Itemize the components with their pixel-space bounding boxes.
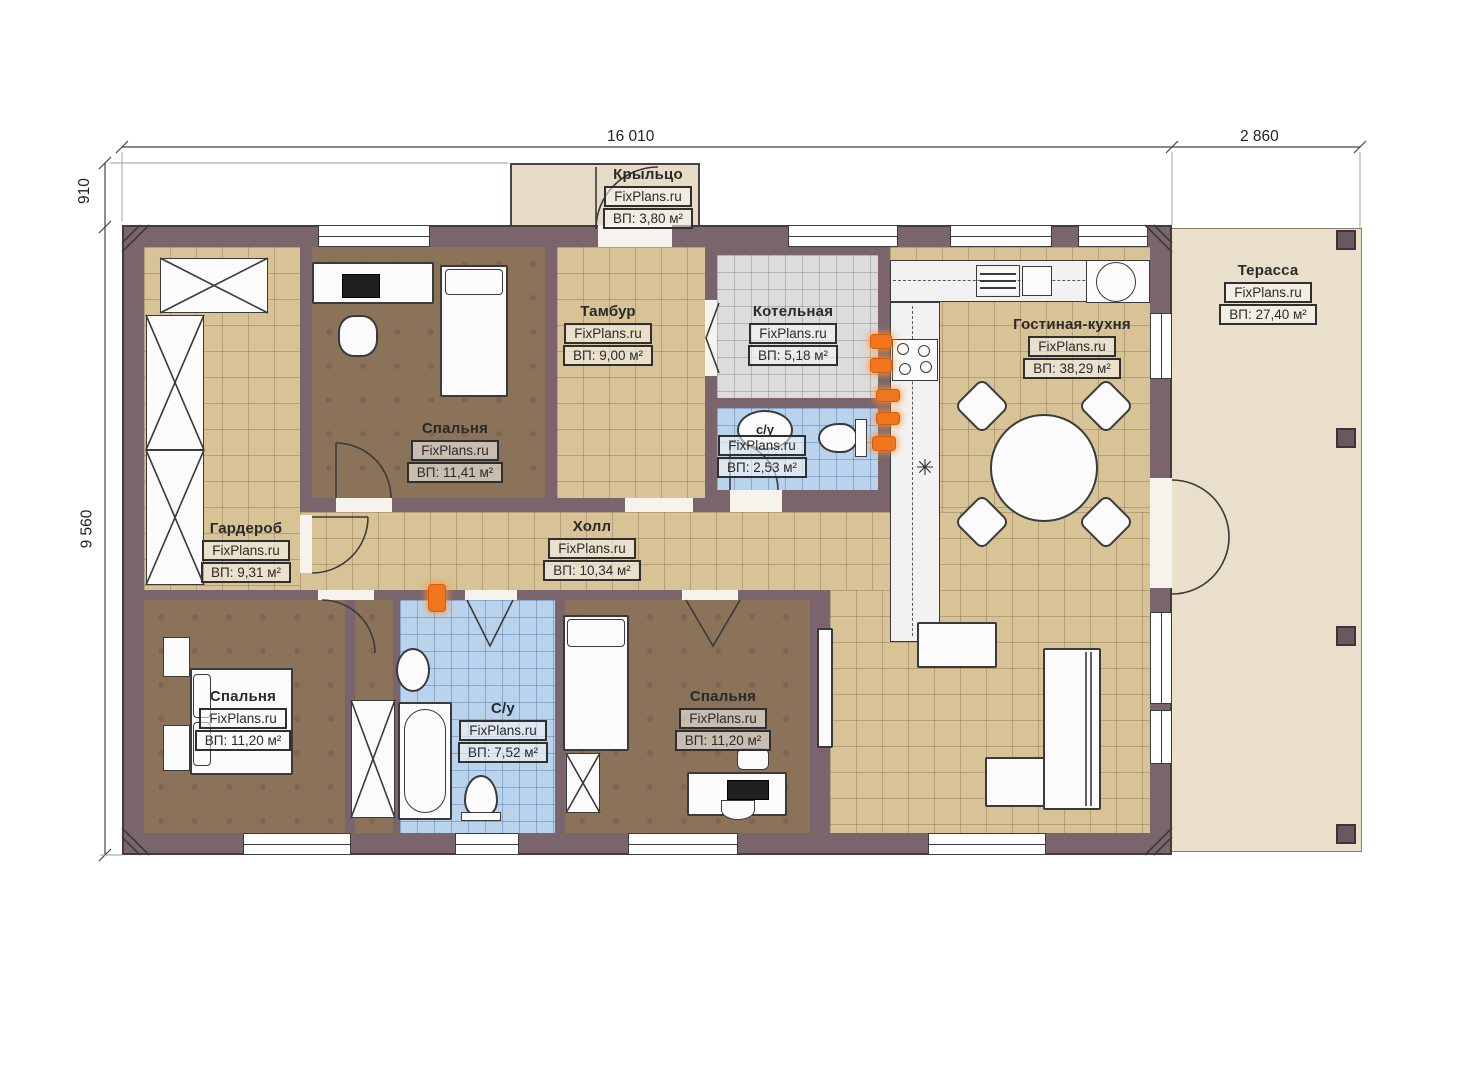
room-label-tambour: Тамбур FixPlans.ru ВП: 9,00 м²	[528, 303, 688, 366]
burner	[918, 345, 930, 357]
dim-height-porch: 910	[76, 178, 94, 204]
room-area: ВП: 3,80 м²	[603, 208, 693, 229]
floor-plan: с/у ✳	[0, 0, 1473, 1080]
room-name: Гардероб	[166, 520, 326, 537]
office-chair	[338, 315, 378, 357]
dishwasher	[976, 265, 1020, 297]
pillow	[567, 619, 625, 647]
room-label-bedroom-left: Спальня FixPlans.ru ВП: 11,20 м²	[163, 688, 323, 751]
door-gap	[730, 490, 782, 512]
toilet-tank	[461, 812, 501, 821]
wall	[545, 247, 557, 512]
window	[243, 833, 351, 855]
pot	[737, 748, 769, 770]
room-area: ВП: 5,18 м²	[748, 345, 838, 366]
watermark: FixPlans.ru	[1224, 282, 1312, 303]
dining-table	[990, 414, 1098, 522]
room-name: Спальня	[375, 420, 535, 437]
door-gap	[625, 498, 693, 512]
terrace-column	[1336, 230, 1356, 250]
radiator-icon	[870, 334, 892, 349]
dim-width-terrace: 2 860	[1240, 128, 1279, 146]
window	[318, 225, 430, 247]
room-name: Котельная	[713, 303, 873, 320]
terrace-column	[1336, 626, 1356, 646]
dim-tick	[1354, 141, 1366, 153]
dim-width-main: 16 010	[607, 128, 654, 146]
door-gap	[465, 590, 517, 600]
room-area: ВП: 11,20 м²	[195, 730, 292, 751]
window	[1150, 710, 1172, 764]
radiator-icon	[872, 436, 896, 451]
burner	[899, 363, 911, 375]
room-area: ВП: 27,40 м²	[1219, 304, 1317, 325]
round-sink	[1096, 262, 1136, 302]
room-area: ВП: 10,34 м²	[543, 560, 641, 581]
room-label-living-kitchen: Гостиная-кухня FixPlans.ru ВП: 38,29 м²	[992, 316, 1152, 379]
room-label-bathroom-small: FixPlans.ru ВП: 2,53 м²	[682, 432, 842, 478]
radiator-icon	[870, 358, 892, 373]
sofa-horizontal	[985, 757, 1045, 807]
watermark: FixPlans.ru	[202, 540, 290, 561]
printer-icon	[727, 780, 769, 800]
radiator-icon	[876, 412, 900, 425]
nightstand	[163, 637, 190, 677]
watermark: FixPlans.ru	[604, 186, 692, 207]
oven	[1022, 266, 1052, 296]
room-area: ВП: 2,53 м²	[717, 457, 807, 478]
watermark: FixPlans.ru	[718, 435, 806, 456]
dim-tick	[99, 157, 111, 169]
window	[1150, 313, 1172, 379]
wall	[300, 247, 312, 512]
terrace-column	[1336, 428, 1356, 448]
watermark: FixPlans.ru	[564, 323, 652, 344]
room-area: ВП: 9,31 м²	[201, 562, 291, 583]
radiator-icon	[876, 389, 900, 402]
toilet	[464, 775, 498, 817]
room-area: ВП: 11,20 м²	[675, 730, 772, 751]
burner	[920, 361, 932, 373]
room-label-porch: Крыльцо FixPlans.ru ВП: 3,80 м²	[568, 166, 728, 229]
printer-icon	[342, 274, 380, 298]
dim-height-main: 9 560	[78, 510, 96, 549]
room-name: Спальня	[163, 688, 323, 705]
fridge-snowflake-icon: ✳	[905, 450, 945, 486]
toilet-tank	[855, 419, 867, 457]
door-gap	[1150, 478, 1172, 588]
dim-tick	[1166, 141, 1178, 153]
watermark: FixPlans.ru	[548, 538, 636, 559]
watermark: FixPlans.ru	[1028, 336, 1116, 357]
wall	[717, 398, 878, 408]
window	[1150, 612, 1172, 704]
room-name: С/у	[423, 700, 583, 717]
dim-tick	[99, 849, 111, 861]
room-name: Тамбур	[528, 303, 688, 320]
terrace-column	[1336, 824, 1356, 844]
door-gap	[318, 590, 374, 600]
watermark: FixPlans.ru	[199, 708, 287, 729]
window	[788, 225, 898, 247]
burner	[897, 343, 909, 355]
window	[950, 225, 1052, 247]
room-label-hall: Холл FixPlans.ru ВП: 10,34 м²	[512, 518, 672, 581]
room-label-terrace: Терасса FixPlans.ru ВП: 27,40 м²	[1188, 262, 1348, 325]
room-area: ВП: 11,41 м²	[407, 462, 504, 483]
room-label-bedroom-mid: Спальня FixPlans.ru ВП: 11,20 м²	[643, 688, 803, 751]
room-label-wardrobe: Гардероб FixPlans.ru ВП: 9,31 м²	[166, 520, 326, 583]
sliding-door-panel	[817, 628, 833, 748]
room-name: Гостиная-кухня	[992, 316, 1152, 333]
room-label-bedroom-top: Спальня FixPlans.ru ВП: 11,41 м²	[375, 420, 535, 483]
window	[628, 833, 738, 855]
window	[455, 833, 519, 855]
chair-half	[721, 800, 755, 820]
window	[928, 833, 1046, 855]
room-name: Холл	[512, 518, 672, 535]
door-gap	[682, 590, 738, 600]
room-name: Спальня	[643, 688, 803, 705]
sofa-vertical	[1043, 648, 1101, 810]
room-name: Крыльцо	[568, 166, 728, 183]
room-label-bathroom-big: С/у FixPlans.ru ВП: 7,52 м²	[423, 700, 583, 763]
sink	[396, 648, 430, 692]
watermark: FixPlans.ru	[749, 323, 837, 344]
wardrobe-cabinet	[160, 258, 268, 313]
window	[1078, 225, 1148, 247]
room-area: ВП: 9,00 м²	[563, 345, 653, 366]
closet	[351, 700, 395, 818]
watermark: FixPlans.ru	[411, 440, 499, 461]
dim-tick	[99, 221, 111, 233]
room-label-boiler: Котельная FixPlans.ru ВП: 5,18 м²	[713, 303, 873, 366]
watermark: FixPlans.ru	[679, 708, 767, 729]
radiator-icon	[428, 584, 446, 612]
coffee-table	[917, 622, 997, 668]
room-area: ВП: 7,52 м²	[458, 742, 548, 763]
door-gap	[336, 498, 392, 512]
room-area: ВП: 38,29 м²	[1023, 358, 1121, 379]
dim-tick	[116, 141, 128, 153]
room-name: Терасса	[1188, 262, 1348, 279]
pillow	[445, 269, 503, 295]
wardrobe-cabinet	[146, 315, 204, 450]
watermark: FixPlans.ru	[459, 720, 547, 741]
